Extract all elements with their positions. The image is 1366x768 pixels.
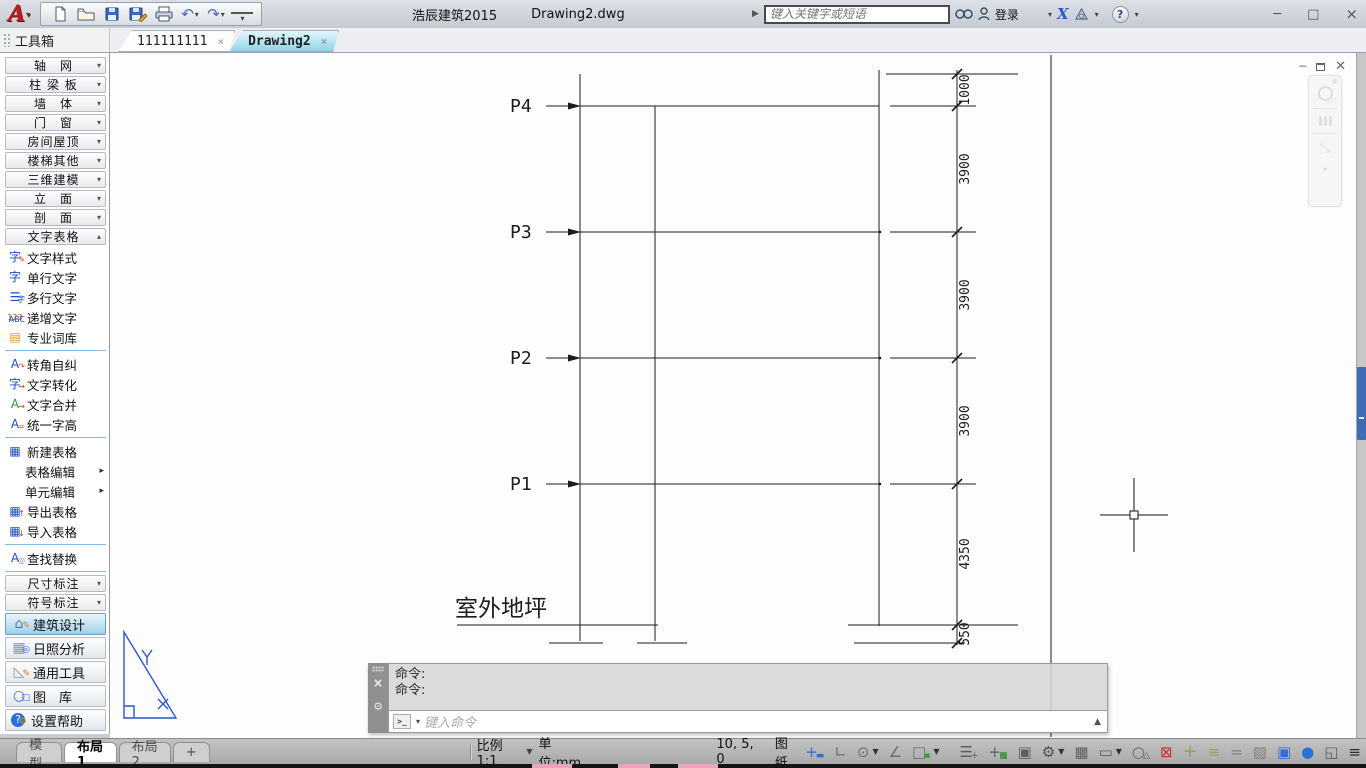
command-history-line: 命令: xyxy=(395,683,1101,699)
chevron-down-icon[interactable]: ▾ xyxy=(221,10,225,19)
navigation-palette[interactable]: ⊗ 2D ⤡ ▾ xyxy=(1308,75,1342,207)
toolbox-item-label: 导入表格 xyxy=(27,522,77,541)
toolbox-item-label: 专业词库 xyxy=(27,328,77,347)
group-label: 符号标注 xyxy=(10,594,97,611)
drawing-canvas[interactable]: P4P3P2P1 10003900390039004350550 室外地坪 ─ … xyxy=(110,53,1356,738)
doc-tab[interactable]: Drawing2× xyxy=(229,30,339,52)
chevron-down-icon[interactable]: ▼ xyxy=(872,747,878,756)
selection-cycling-icon[interactable]: ▣ xyxy=(1018,743,1032,761)
annotation-icon[interactable]: ● xyxy=(1301,743,1314,761)
level-label: P4 xyxy=(510,96,532,117)
group-label: 文字表格 xyxy=(10,228,97,245)
window-title: 浩辰建筑2015 Drawing2.dwg xyxy=(412,0,625,28)
paper-model-toggle[interactable]: 图纸 xyxy=(775,733,798,768)
clean-screen-icon[interactable]: ⊠ xyxy=(1160,743,1173,761)
command-window: × ⚙ 命令: 命令: >_ ▾ 键入命令 ▲ xyxy=(368,663,1108,733)
layout-tab[interactable]: 布局1 xyxy=(64,742,117,762)
ground-level-label: 室外地坪 xyxy=(455,596,547,622)
text-style-icon: 字✎ xyxy=(7,250,23,265)
mode-button[interactable]: ?⚙设置帮助 xyxy=(5,709,106,731)
wrench-icon[interactable]: ⚙ xyxy=(373,700,383,713)
qat-customize-button[interactable]: ▾ xyxy=(231,12,253,22)
toolbox-group-button[interactable]: 楼梯其他▾ xyxy=(5,152,106,169)
elevation-drawing: P4P3P2P1 10003900390039004350550 室外地坪 xyxy=(110,53,1356,738)
mode-button[interactable]: ▦◎日照分析 xyxy=(5,637,106,659)
document-tab-bar: 工具箱 111111111×Drawing2× xyxy=(0,28,1366,53)
chevron-down-icon[interactable]: ▼ xyxy=(933,747,939,756)
crosshair-cursor xyxy=(1100,478,1168,552)
application-window: A▾ ↶▾ ↷▾ ▾ 浩辰建筑2015 Drawing2.dwg xyxy=(0,0,1366,768)
icon-glyph: ⚙ xyxy=(1042,743,1055,761)
group-label: 轴 网 xyxy=(10,57,97,74)
submenu-arrow-icon: ▸ xyxy=(99,486,104,496)
toolbox-item[interactable]: ▦↑导出表格 xyxy=(5,501,106,521)
command-expand-icon[interactable]: ▲ xyxy=(1094,717,1101,727)
multi-line-text-icon: ☰字 xyxy=(7,290,23,305)
new-file-button[interactable] xyxy=(49,4,71,24)
dimension-value: 3900 xyxy=(958,153,973,184)
icon-glyph: ∟ xyxy=(834,743,847,761)
toolbox-item-label: 文字样式 xyxy=(27,248,77,267)
find-replace-icon: A◎ xyxy=(7,551,23,566)
polar-tracking-icon[interactable]: ⊙▼ xyxy=(857,743,879,761)
exchange-x-icon[interactable]: X xyxy=(1057,5,1069,23)
statusbar-menu-icon[interactable]: ≡ xyxy=(1348,743,1361,761)
toolbox-item[interactable]: A↷转角自纠 xyxy=(5,354,106,374)
icon-glyph: = xyxy=(1230,743,1243,761)
doc-tab[interactable]: 111111111× xyxy=(118,30,235,52)
document-tabs: 111111111×Drawing2× xyxy=(110,28,333,52)
scrollbar-thumb[interactable] xyxy=(1357,367,1366,440)
group-label: 房间屋顶 xyxy=(10,133,97,150)
sunlight-analysis-icon: ▦◎ xyxy=(10,640,28,657)
toolbox-item[interactable]: A=统一字高 xyxy=(5,414,106,434)
chevron-down-icon: ▾ xyxy=(97,213,101,222)
set-square-triangle xyxy=(124,632,176,718)
toolbox-group-button[interactable]: 文字表格▴ xyxy=(5,228,106,245)
search-icon[interactable] xyxy=(955,7,973,21)
document-window-controls: ─ ✕ xyxy=(1299,59,1346,74)
redo-button[interactable]: ↷▾ xyxy=(205,4,227,24)
icon-glyph: ▣ xyxy=(1018,743,1032,761)
toolbox-item-label: 表格编辑 xyxy=(25,462,75,481)
toolbox-item-label: 文字转化 xyxy=(27,375,77,394)
tab-close-icon[interactable]: × xyxy=(321,35,328,48)
group-label: 剖 面 xyxy=(10,209,97,226)
toolbox-group-button[interactable]: 轴 网▾ xyxy=(5,57,106,74)
chevron-down-icon: ▾ xyxy=(97,99,101,108)
icon-glyph: ▭ xyxy=(1099,743,1113,761)
single-line-text-icon: 字 xyxy=(7,270,23,285)
toolbox-item-label: 新建表格 xyxy=(27,442,77,461)
chevron-down-icon[interactable]: ▾ xyxy=(1095,10,1099,19)
maximize-button[interactable]: □ xyxy=(1307,7,1319,22)
chevron-down-icon: ▾ xyxy=(97,156,101,165)
mode-button[interactable]: ⌂✎建筑设计 xyxy=(5,613,106,635)
chevron-down-icon[interactable]: ▾ xyxy=(1323,165,1327,174)
increment-text-icon: 123ABC xyxy=(7,310,23,325)
toolbox-item[interactable]: 字→文字转化 xyxy=(5,374,106,394)
chevron-down-icon: ▾ xyxy=(97,175,101,184)
toolbox-group-button[interactable]: 房间屋顶▾ xyxy=(5,133,106,150)
chevron-down-icon: ▾ xyxy=(97,61,101,70)
group-label: 柱 梁 板 xyxy=(10,76,97,93)
window-controls: ─ □ × xyxy=(1273,0,1358,28)
app-title: 浩辰建筑2015 xyxy=(412,5,497,24)
command-close-icon[interactable]: × xyxy=(373,676,383,690)
icon-glyph: ∠ xyxy=(889,743,902,761)
toolbox-group-button[interactable]: 尺寸标注▾ xyxy=(5,575,106,592)
command-input-placeholder[interactable]: 键入命令 xyxy=(424,712,1090,731)
toolbox-group-button[interactable]: 符号标注▾ xyxy=(5,594,106,611)
chevron-down-icon[interactable]: ▾ xyxy=(1048,10,1052,19)
lineweight-icon[interactable]: ≡ xyxy=(1208,743,1221,761)
text-convert-icon: 字→ xyxy=(7,377,23,392)
icon-glyph: ● xyxy=(1301,743,1314,761)
layout-tab[interactable]: 布局2 xyxy=(119,742,171,762)
chevron-down-icon[interactable]: ▼ xyxy=(526,747,532,756)
toolbox-item-label: 多行文字 xyxy=(27,288,77,307)
dimension-value: 3900 xyxy=(958,279,973,310)
help-icon[interactable]: ? xyxy=(1112,6,1129,23)
ortho-icon[interactable]: ∟ xyxy=(834,743,847,761)
chevron-up-icon: ▴ xyxy=(97,232,101,241)
command-history-line: 命令: xyxy=(395,667,1101,683)
title-bar: A▾ ↶▾ ↷▾ ▾ 浩辰建筑2015 Drawing2.dwg xyxy=(0,0,1366,28)
chevron-down-icon: ▾ xyxy=(97,579,101,588)
snap-icon[interactable]: +▬ xyxy=(805,743,824,761)
toolbox-item[interactable]: ▦↓导入表格 xyxy=(5,521,106,541)
app-window-icon[interactable]: ◱ xyxy=(1324,743,1338,761)
status-bar: 模型布局1布局2+ 比例 1:1 ▼ 单位:mm 10, 5, 0 图纸 +▬∟… xyxy=(0,738,1366,764)
icon-glyph: ▨ xyxy=(1253,743,1267,761)
group-label: 楼梯其他 xyxy=(10,152,97,169)
general-tools-icon: ◺✎ xyxy=(10,664,28,681)
icon-glyph: + xyxy=(1183,741,1198,762)
corner-correct-icon: A↷ xyxy=(7,357,23,372)
doc-restore-button[interactable] xyxy=(1316,63,1325,71)
toolbox-item[interactable]: ▦新建表格 xyxy=(5,441,106,461)
export-table-icon: ▦↑ xyxy=(7,504,23,519)
toolbox-item-label: 递增文字 xyxy=(27,308,77,327)
divider xyxy=(5,350,106,351)
osnap-icon[interactable]: ∠ xyxy=(889,743,902,761)
print-button[interactable] xyxy=(153,4,175,24)
toolbox-item-label: 查找替换 xyxy=(27,549,77,568)
mode-button[interactable]: ◺✎通用工具 xyxy=(5,661,106,683)
minimize-button[interactable]: ─ xyxy=(1273,7,1281,22)
toolbox-item[interactable]: 123ABC递增文字 xyxy=(5,307,106,327)
library-icon: ○□ xyxy=(10,688,28,705)
chevron-down-icon[interactable]: ▼ xyxy=(1058,747,1064,756)
hatch-icon[interactable]: ▨ xyxy=(1253,743,1267,761)
icon-glyph: ≡ xyxy=(1208,743,1221,761)
grip-dots-icon xyxy=(3,33,11,47)
chevron-down-icon: ▾ xyxy=(97,137,101,146)
mode-button[interactable]: ○□图 库 xyxy=(5,685,106,707)
doc-minimize-button[interactable]: ─ xyxy=(1299,60,1306,73)
toolbox-panel-header[interactable]: 工具箱 xyxy=(0,28,110,52)
toolbox-group-button[interactable]: 柱 梁 板▾ xyxy=(5,76,106,93)
coordinates-display: 10, 5, 0 xyxy=(716,737,760,767)
doc-close-button[interactable]: ✕ xyxy=(1335,59,1346,74)
info-center: ▶ 登录 ▾ X ▾ ? ▾ xyxy=(752,3,1139,25)
icon-glyph: ⊙ xyxy=(857,743,870,761)
undo-button[interactable]: ↶▾ xyxy=(179,4,201,24)
dimension-value: 550 xyxy=(958,622,973,645)
palette-close-icon[interactable]: ⊗ xyxy=(1331,77,1338,86)
doc-tab-label: 111111111 xyxy=(137,34,207,49)
toolbox-group-button[interactable]: 门 窗▾ xyxy=(5,114,106,131)
dictionary-icon: ▤ xyxy=(7,330,23,345)
save-as-button[interactable] xyxy=(127,4,149,24)
object-snap-plus-icon[interactable]: +■ xyxy=(989,743,1008,761)
submenu-arrow-icon: ▸ xyxy=(99,466,104,476)
user-icon[interactable] xyxy=(978,7,990,21)
crosshair-size-icon[interactable]: + xyxy=(1183,741,1198,762)
vertical-scrollbar[interactable] xyxy=(1356,53,1366,738)
dynamic-input-icon[interactable]: ☰+ xyxy=(960,743,979,761)
mode-label: 建筑设计 xyxy=(33,615,85,634)
command-input-row[interactable]: >_ ▾ 键入命令 ▲ xyxy=(388,710,1108,733)
group-label: 墙 体 xyxy=(10,95,97,112)
icon-glyph: ▦ xyxy=(1074,743,1088,761)
close-button[interactable]: × xyxy=(1345,5,1358,23)
toolbox-group-button[interactable]: 三维建模▾ xyxy=(5,171,106,188)
open-file-button[interactable] xyxy=(75,4,97,24)
app-logo-button[interactable]: A▾ xyxy=(2,1,36,27)
doc-tab-label: Drawing2 xyxy=(248,34,311,49)
chevron-down-icon: ▾ xyxy=(26,9,30,19)
level-labels: P4P3P2P1 xyxy=(510,96,532,495)
layout-tab[interactable]: 模型 xyxy=(16,742,62,762)
command-grip-bar[interactable]: × ⚙ xyxy=(368,663,388,733)
toolbox-group-button[interactable]: 墙 体▾ xyxy=(5,95,106,112)
toolbox-item[interactable]: 表格编辑▸ xyxy=(5,461,106,481)
toolbox-item-label: 导出表格 xyxy=(27,502,77,521)
dimension-value: 3900 xyxy=(958,405,973,436)
zoom-extents-icon[interactable]: ⤡ xyxy=(1320,141,1330,156)
toolbox-item[interactable]: ☰字多行文字 xyxy=(5,287,106,307)
toolbox-item[interactable]: 单元编辑▸ xyxy=(5,481,106,501)
chevron-down-icon[interactable]: ▼ xyxy=(1116,747,1122,756)
toolbox-item[interactable]: 字✎文字样式 xyxy=(5,247,106,267)
mode-label: 图 库 xyxy=(33,687,72,706)
tab-close-icon[interactable]: × xyxy=(217,35,224,48)
scale-dropdown[interactable]: 比例 1:1 xyxy=(477,735,523,768)
command-history: 命令: 命令: xyxy=(388,663,1108,710)
chevron-down-icon[interactable]: ▾ xyxy=(416,717,420,726)
toolbox-item[interactable]: 字单行文字 xyxy=(5,267,106,287)
isolate-objects-icon[interactable]: ○△ xyxy=(1132,743,1150,761)
steering-wheel-2d-icon[interactable]: 2D xyxy=(1318,86,1333,101)
icon-glyph: ⊠ xyxy=(1160,743,1173,761)
icon-glyph: ◱ xyxy=(1324,743,1338,761)
chevron-down-icon: ▾ xyxy=(97,598,101,607)
mode-label: 通用工具 xyxy=(33,663,85,682)
document-title: Drawing2.dwg xyxy=(531,7,625,22)
login-button[interactable]: 登录 xyxy=(995,6,1019,23)
communication-center-icon[interactable] xyxy=(1074,7,1089,21)
group-label: 尺寸标注 xyxy=(10,575,97,592)
toolbox-group-button[interactable]: 剖 面▾ xyxy=(5,209,106,226)
settings-help-icon: ?⚙ xyxy=(11,713,25,727)
save-button[interactable] xyxy=(101,4,123,24)
grip-dots-icon xyxy=(372,666,384,672)
chevron-down-icon[interactable]: ▾ xyxy=(1135,10,1139,19)
gear-icon[interactable]: ⚙▼ xyxy=(1042,743,1065,761)
chevron-down-icon: ▾ xyxy=(97,80,101,89)
leader-arrows xyxy=(568,103,881,488)
taskbar-sliver xyxy=(0,764,1366,768)
units-label: 单位:mm xyxy=(538,733,588,768)
level-label: P2 xyxy=(510,348,532,369)
layout-tab[interactable]: + xyxy=(173,742,210,762)
import-table-icon: ▦↓ xyxy=(7,524,23,539)
divider xyxy=(5,437,106,438)
toolbox-item-label: 单行文字 xyxy=(27,268,77,287)
toolbox-item-label: 单元编辑 xyxy=(25,482,75,501)
chevron-down-icon: ▾ xyxy=(97,118,101,127)
otrack-icon[interactable]: □▪▼ xyxy=(912,743,939,761)
new-table-icon: ▦ xyxy=(7,444,23,459)
dimension-value: 4350 xyxy=(958,538,973,569)
quick-access-toolbar: ↶▾ ↷▾ ▾ xyxy=(40,2,262,26)
icon-glyph: ▣ xyxy=(1277,743,1291,761)
mode-label: 日照分析 xyxy=(33,639,85,658)
level-label: P1 xyxy=(510,474,532,495)
command-prompt-icon: >_ xyxy=(393,714,411,729)
group-label: 三维建模 xyxy=(10,171,97,188)
toolbox-sidebar: 轴 网▾柱 梁 板▾墙 体▾门 窗▾房间屋顶▾楼梯其他▾三维建模▾立 面▾剖 面… xyxy=(0,53,110,734)
transparency-icon[interactable]: = xyxy=(1230,743,1243,761)
building-design-icon: ⌂✎ xyxy=(10,616,28,633)
pan-hand-icon[interactable] xyxy=(1319,116,1332,126)
icon-glyph: ≡ xyxy=(1348,743,1361,761)
level-label: P3 xyxy=(510,222,532,243)
toolbox-item[interactable]: ▤专业词库 xyxy=(5,327,106,347)
mode-label: 设置帮助 xyxy=(31,711,83,730)
group-label: 立 面 xyxy=(10,190,97,207)
divider xyxy=(5,544,106,545)
group-label: 门 窗 xyxy=(10,114,97,131)
toolbox-item-label: 统一字高 xyxy=(27,415,77,434)
search-input[interactable] xyxy=(764,5,950,24)
toolbox-item-label: 转角自纠 xyxy=(27,355,77,374)
chevron-down-icon[interactable]: ▾ xyxy=(195,10,199,19)
chevron-down-icon: ▾ xyxy=(97,194,101,203)
toolbox-group-button[interactable]: 立 面▾ xyxy=(5,190,106,207)
layout-tabs: 模型布局1布局2+ xyxy=(16,739,212,764)
toolbox-item-label: 文字合并 xyxy=(27,395,77,414)
collapse-arrow-icon[interactable]: ▶ xyxy=(752,9,759,19)
layers-icon[interactable]: ▣ xyxy=(1277,743,1291,761)
lock-ui-icon[interactable]: ▭▼ xyxy=(1099,743,1122,761)
unify-height-icon: A= xyxy=(7,417,23,432)
toolbox-item[interactable]: A◎查找替换 xyxy=(5,548,106,568)
dimension-value: 1000 xyxy=(958,74,973,105)
text-merge-icon: A→ xyxy=(7,397,23,412)
dimension-labels: 10003900390039004350550 xyxy=(958,74,973,645)
toolbox-title: 工具箱 xyxy=(15,31,54,50)
quick-properties-icon[interactable]: ▦ xyxy=(1074,743,1088,761)
toolbox-item[interactable]: A→文字合并 xyxy=(5,394,106,414)
command-body: 命令: 命令: >_ ▾ 键入命令 ▲ xyxy=(388,663,1108,733)
